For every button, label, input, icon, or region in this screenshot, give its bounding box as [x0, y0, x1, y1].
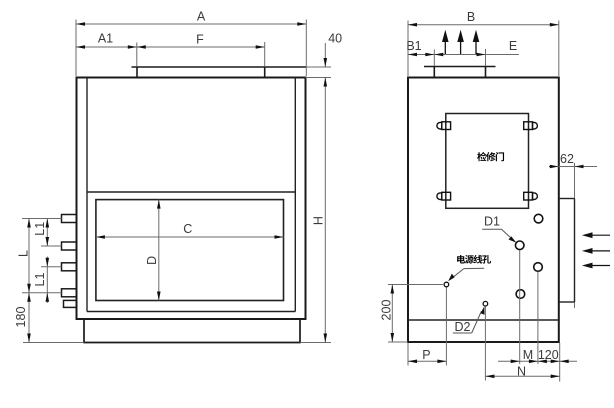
- svg-text:L1: L1: [33, 273, 47, 287]
- svg-text:D1: D1: [484, 215, 500, 229]
- svg-text:L: L: [16, 250, 30, 257]
- svg-text:62: 62: [560, 152, 574, 166]
- svg-text:B: B: [467, 10, 475, 24]
- svg-text:B1: B1: [406, 39, 421, 53]
- svg-text:P: P: [422, 348, 430, 362]
- svg-text:F: F: [196, 33, 204, 47]
- svg-text:L1: L1: [33, 222, 47, 236]
- svg-text:N: N: [517, 365, 526, 379]
- svg-text:200: 200: [380, 300, 394, 321]
- svg-text:A1: A1: [98, 32, 113, 46]
- svg-text:H: H: [312, 216, 326, 225]
- svg-text:40: 40: [328, 32, 342, 46]
- svg-text:D: D: [145, 256, 159, 265]
- svg-text:E: E: [509, 39, 517, 53]
- svg-text:120: 120: [538, 348, 559, 362]
- svg-text:M: M: [523, 348, 533, 362]
- svg-text:A: A: [197, 10, 206, 24]
- svg-text:D2: D2: [455, 320, 471, 334]
- svg-text:C: C: [183, 222, 192, 236]
- svg-text:180: 180: [14, 307, 28, 328]
